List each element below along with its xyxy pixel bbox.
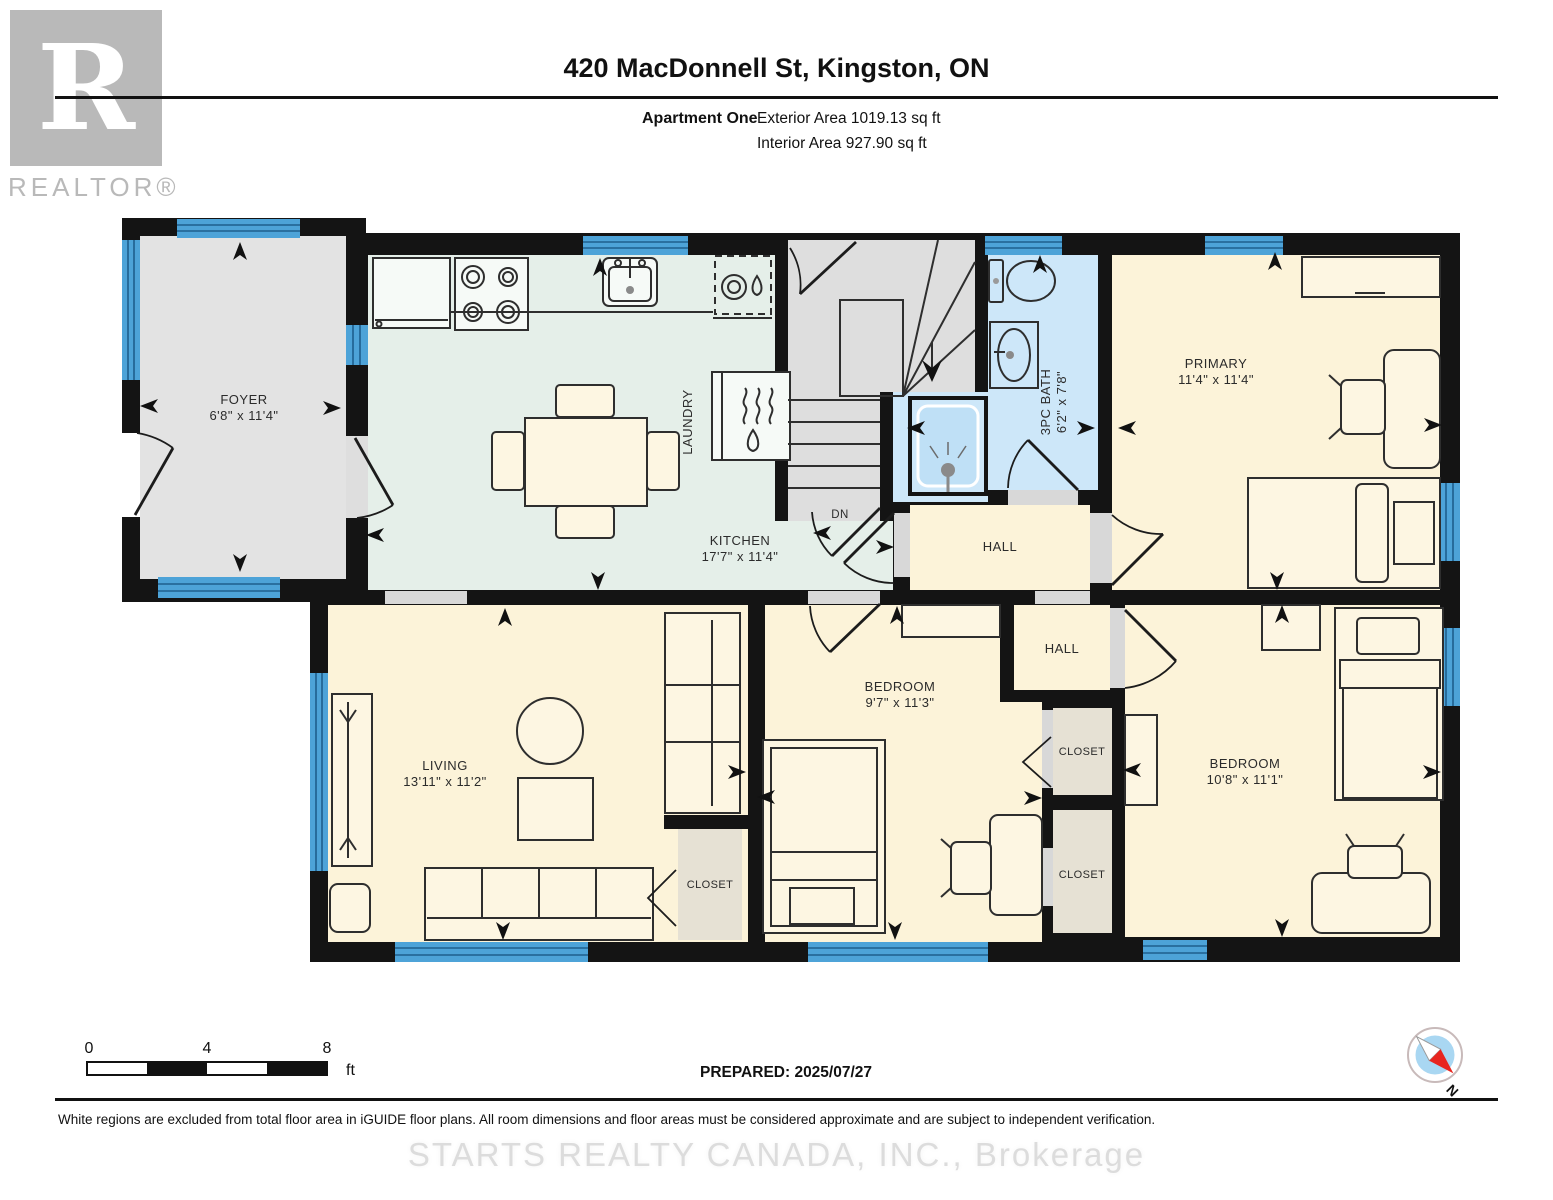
window — [1205, 236, 1283, 255]
tv-console-icon — [332, 694, 372, 866]
desk-icon — [1312, 873, 1430, 933]
bed-icon — [1335, 608, 1443, 800]
dresser-icon — [902, 605, 1000, 637]
hall-lower-label: HALL — [1045, 641, 1080, 656]
primary-label: PRIMARY — [1185, 356, 1248, 371]
round-table-icon — [517, 698, 583, 764]
prepared-date: PREPARED: 2025/07/27 — [700, 1064, 872, 1081]
bedroom-mid-dims: 9'7" x 11'3" — [865, 695, 934, 710]
window — [122, 240, 140, 380]
primary-dims: 11'4" x 11'4" — [1178, 372, 1254, 387]
stove-icon — [455, 258, 528, 330]
bedroom-right-label: BEDROOM — [1210, 756, 1281, 771]
bedroom-mid-label: BEDROOM — [865, 679, 936, 694]
bath-dims: 6'2" x 7'8" — [1054, 371, 1069, 433]
window — [310, 673, 328, 871]
floorplan-page: R REALTOR® 420 MacDonnell St, Kingston, … — [0, 0, 1553, 1200]
closet-living-label: CLOSET — [687, 879, 733, 891]
shower-icon — [910, 398, 986, 494]
window — [1440, 483, 1460, 561]
footer-disclaimer: White regions are excluded from total fl… — [58, 1112, 1155, 1127]
dresser-icon — [1302, 257, 1440, 297]
desk-icon — [1384, 350, 1440, 468]
foyer-label: FOYER — [220, 392, 267, 407]
stairs-dn-label: DN — [831, 509, 848, 521]
bath-label: 3PC BATH — [1038, 369, 1053, 436]
scale-unit: ft — [346, 1062, 355, 1079]
hall-upper-label: HALL — [983, 539, 1018, 554]
window — [1143, 940, 1207, 960]
bed-icon — [763, 740, 885, 933]
bedroom-right-dims: 10'8" x 11'1" — [1207, 772, 1284, 787]
window — [583, 236, 688, 255]
window — [158, 577, 280, 598]
closet-upper-label: CLOSET — [1059, 746, 1105, 758]
window — [395, 942, 588, 962]
compass-icon: N — [1408, 1028, 1462, 1100]
side-table-icon — [330, 884, 370, 932]
window — [808, 942, 988, 962]
kitchen-dims: 17'7" x 11'4" — [702, 549, 779, 564]
desk-icon — [990, 815, 1042, 915]
scale-0: 0 — [85, 1040, 94, 1057]
bookshelf-icon — [665, 613, 740, 813]
dresser-icon — [1125, 715, 1157, 805]
bed-icon — [1248, 478, 1440, 588]
footer-rule — [55, 1098, 1498, 1101]
window — [346, 325, 368, 365]
sink-icon — [603, 258, 657, 306]
kitchen-label: KITCHEN — [710, 533, 771, 548]
sofa-icon — [425, 868, 653, 940]
brokerage-watermark: STARTS REALTY CANADA, INC., Brokerage — [0, 1136, 1553, 1174]
window — [985, 236, 1062, 255]
floor-plan: FOYER 6'8" x 11'4" KITCHEN 17'7" x 11'4"… — [0, 0, 1553, 1200]
fridge-icon — [373, 258, 450, 328]
scale-4: 4 — [203, 1040, 212, 1057]
living-label: LIVING — [422, 758, 468, 773]
scale-8: 8 — [323, 1040, 332, 1057]
foyer-dims: 6'8" x 11'4" — [209, 408, 278, 423]
living-dims: 13'11" x 11'2" — [403, 774, 487, 789]
closet-lower-label: CLOSET — [1059, 869, 1105, 881]
window — [177, 219, 300, 238]
scale-bar: 0 4 8 ft — [85, 1040, 356, 1079]
laundry-label: LAUNDRY — [680, 389, 695, 454]
coffee-table-icon — [518, 778, 593, 840]
washer-dryer-icon — [712, 372, 790, 460]
dresser-icon — [1262, 605, 1320, 650]
compass-north-label: N — [1443, 1081, 1461, 1099]
